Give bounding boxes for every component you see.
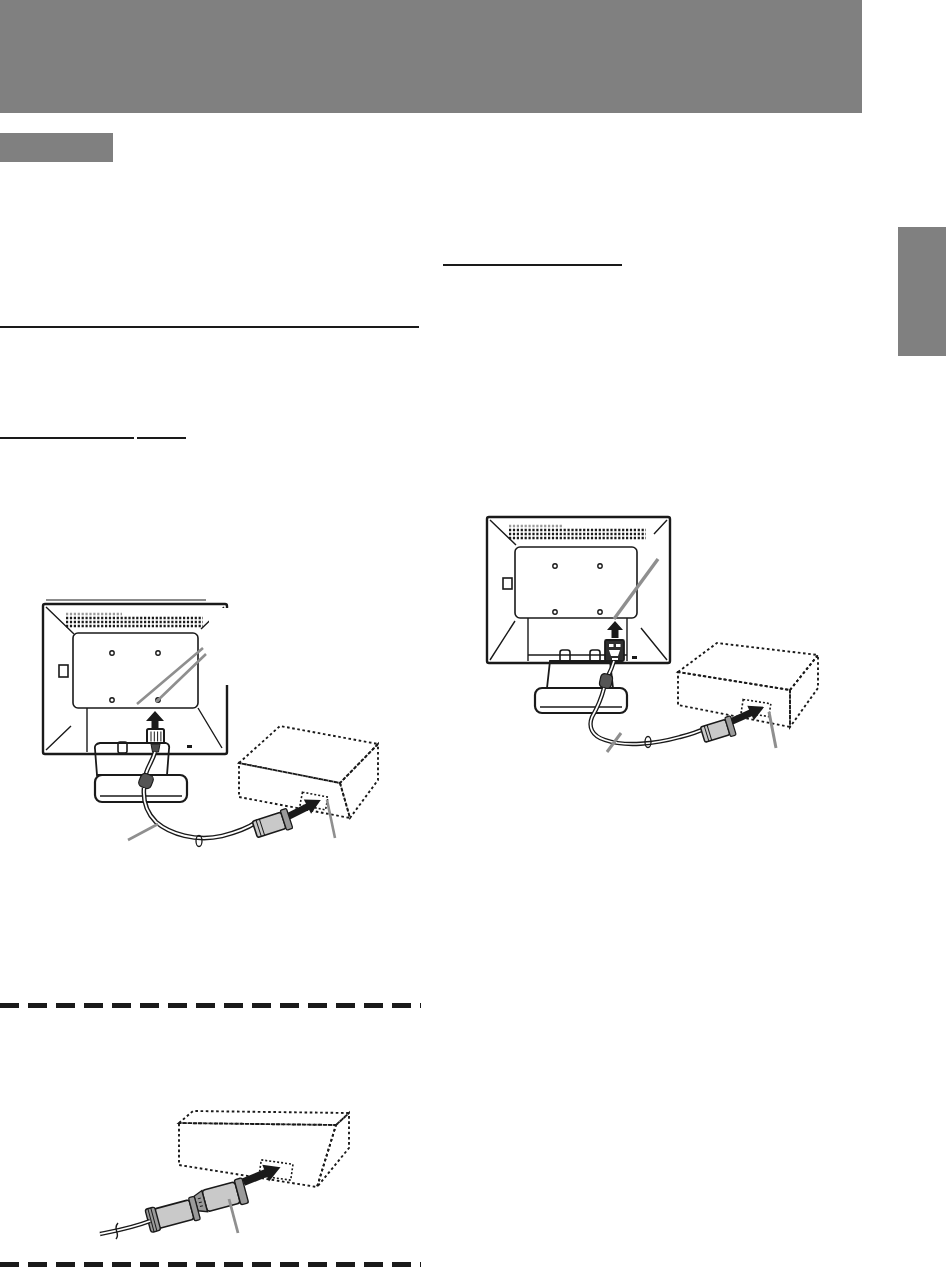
connector-callout-lines [137,648,206,704]
cable [100,1221,150,1239]
left-subheading-rule-b [137,437,186,439]
kensington-slot [632,656,637,659]
diagram-adapter-connection [95,1095,365,1245]
vent-grid [509,526,646,538]
left-subheading-rule-a [0,437,134,439]
chapter-side-tab [898,227,946,356]
insert-arrow [240,1159,284,1191]
vent-grid [66,614,203,626]
manual-page [0,0,946,1269]
cable-end-connector [700,716,736,744]
screw-holes [553,564,602,614]
right-heading-rule [443,264,622,266]
up-arrow [146,711,164,729]
ferrite-bead [599,673,614,689]
label-gap [209,608,235,685]
vesa-plate [73,633,198,708]
monitor-rear [487,517,670,713]
vesa-plate [515,547,637,618]
analog-signal-connector [147,729,164,752]
dashed-divider-top [0,1003,421,1008]
kensington-slot [187,745,192,748]
cable-end-connector [252,808,293,839]
left-heading-rule [0,326,419,328]
conversion-adapter [193,1178,249,1216]
port-callout [327,800,335,838]
cable-end-connector [145,1196,200,1232]
dashed-divider-bottom [0,1262,421,1267]
stand-base [535,688,627,713]
page-header-band [0,0,862,113]
cable-callout [128,824,158,840]
connector-callout [614,559,658,619]
port-callout [769,712,776,748]
diagram-analog-connection [35,595,395,860]
diagram-digital-connection [480,505,840,765]
latch-slot [59,665,68,677]
section-label-box [0,133,113,162]
digital-signal-connector [605,640,624,661]
latch-slot [503,578,512,589]
up-arrow [607,621,623,638]
screw-holes [110,651,160,702]
